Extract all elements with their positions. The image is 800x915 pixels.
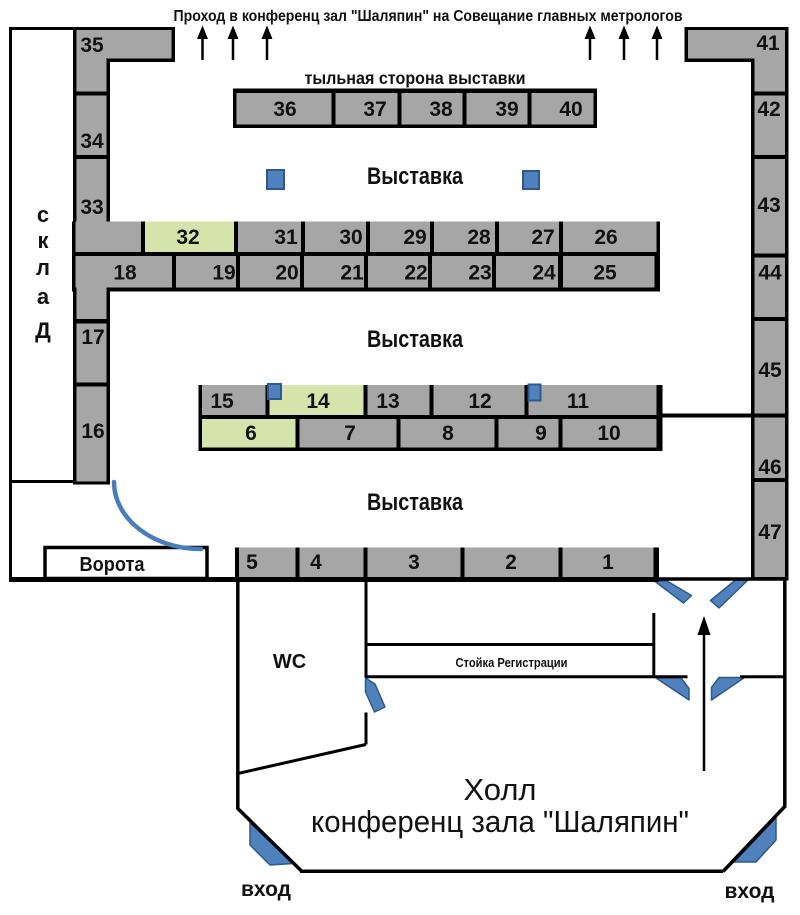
- svg-text:25: 25: [593, 262, 617, 285]
- svg-text:37: 37: [363, 98, 386, 121]
- svg-text:6: 6: [245, 422, 257, 445]
- svg-text:вход: вход: [725, 880, 775, 903]
- svg-text:40: 40: [559, 98, 582, 121]
- svg-text:28: 28: [467, 226, 491, 249]
- svg-text:Выставка: Выставка: [367, 163, 464, 190]
- svg-text:8: 8: [442, 422, 454, 445]
- svg-text:31: 31: [274, 226, 298, 249]
- svg-text:Стойка Регистрации: Стойка Регистрации: [456, 656, 568, 670]
- svg-text:10: 10: [597, 422, 620, 445]
- svg-text:Ворота: Ворота: [80, 554, 146, 576]
- svg-text:тыльная сторона выставки: тыльная сторона выставки: [305, 68, 526, 88]
- svg-text:22: 22: [404, 262, 427, 285]
- svg-text:1: 1: [602, 551, 614, 574]
- svg-text:7: 7: [344, 422, 356, 445]
- svg-text:14: 14: [306, 390, 330, 413]
- svg-text:к: к: [37, 228, 49, 253]
- svg-text:20: 20: [275, 262, 298, 285]
- svg-text:конференц зала "Шаляпин": конференц зала "Шаляпин": [311, 804, 689, 839]
- svg-text:41: 41: [756, 32, 780, 55]
- svg-text:а: а: [37, 284, 50, 309]
- svg-text:3: 3: [408, 551, 420, 574]
- svg-text:45: 45: [758, 359, 782, 382]
- svg-text:46: 46: [758, 456, 781, 479]
- svg-text:WC: WC: [273, 651, 306, 673]
- svg-text:18: 18: [113, 262, 137, 285]
- svg-text:29: 29: [403, 226, 426, 249]
- svg-text:39: 39: [495, 98, 518, 121]
- svg-text:24: 24: [532, 262, 556, 285]
- svg-text:с: с: [37, 202, 49, 227]
- svg-text:26: 26: [594, 226, 617, 249]
- svg-text:21: 21: [340, 262, 364, 285]
- svg-text:4: 4: [310, 551, 322, 574]
- svg-text:34: 34: [80, 130, 104, 153]
- svg-text:Холл: Холл: [463, 772, 536, 807]
- svg-text:вход: вход: [241, 878, 291, 901]
- svg-text:15: 15: [210, 390, 234, 413]
- svg-text:9: 9: [535, 422, 547, 445]
- svg-text:30: 30: [339, 226, 362, 249]
- svg-text:36: 36: [273, 98, 296, 121]
- svg-text:5: 5: [246, 551, 258, 574]
- svg-text:Выставка: Выставка: [367, 489, 464, 516]
- svg-text:13: 13: [376, 390, 399, 413]
- svg-text:44: 44: [758, 262, 782, 285]
- svg-text:Проход в конференц зал "Шаляпи: Проход в конференц зал "Шаляпин" на Сове…: [174, 8, 683, 25]
- svg-text:47: 47: [758, 521, 781, 544]
- svg-text:23: 23: [468, 262, 491, 285]
- svg-text:л: л: [36, 255, 50, 280]
- svg-text:42: 42: [757, 98, 780, 121]
- svg-text:43: 43: [757, 194, 780, 217]
- svg-text:Д: Д: [35, 318, 51, 343]
- svg-text:16: 16: [81, 420, 104, 443]
- svg-text:11: 11: [567, 390, 590, 413]
- svg-text:27: 27: [531, 226, 554, 249]
- svg-text:35: 35: [80, 34, 104, 57]
- svg-text:38: 38: [429, 98, 453, 121]
- svg-text:33: 33: [80, 196, 103, 219]
- svg-text:12: 12: [468, 390, 491, 413]
- svg-text:17: 17: [81, 326, 104, 349]
- svg-text:2: 2: [505, 551, 517, 574]
- svg-text:19: 19: [212, 262, 235, 285]
- svg-text:32: 32: [176, 226, 199, 249]
- svg-text:Выставка: Выставка: [367, 326, 464, 353]
